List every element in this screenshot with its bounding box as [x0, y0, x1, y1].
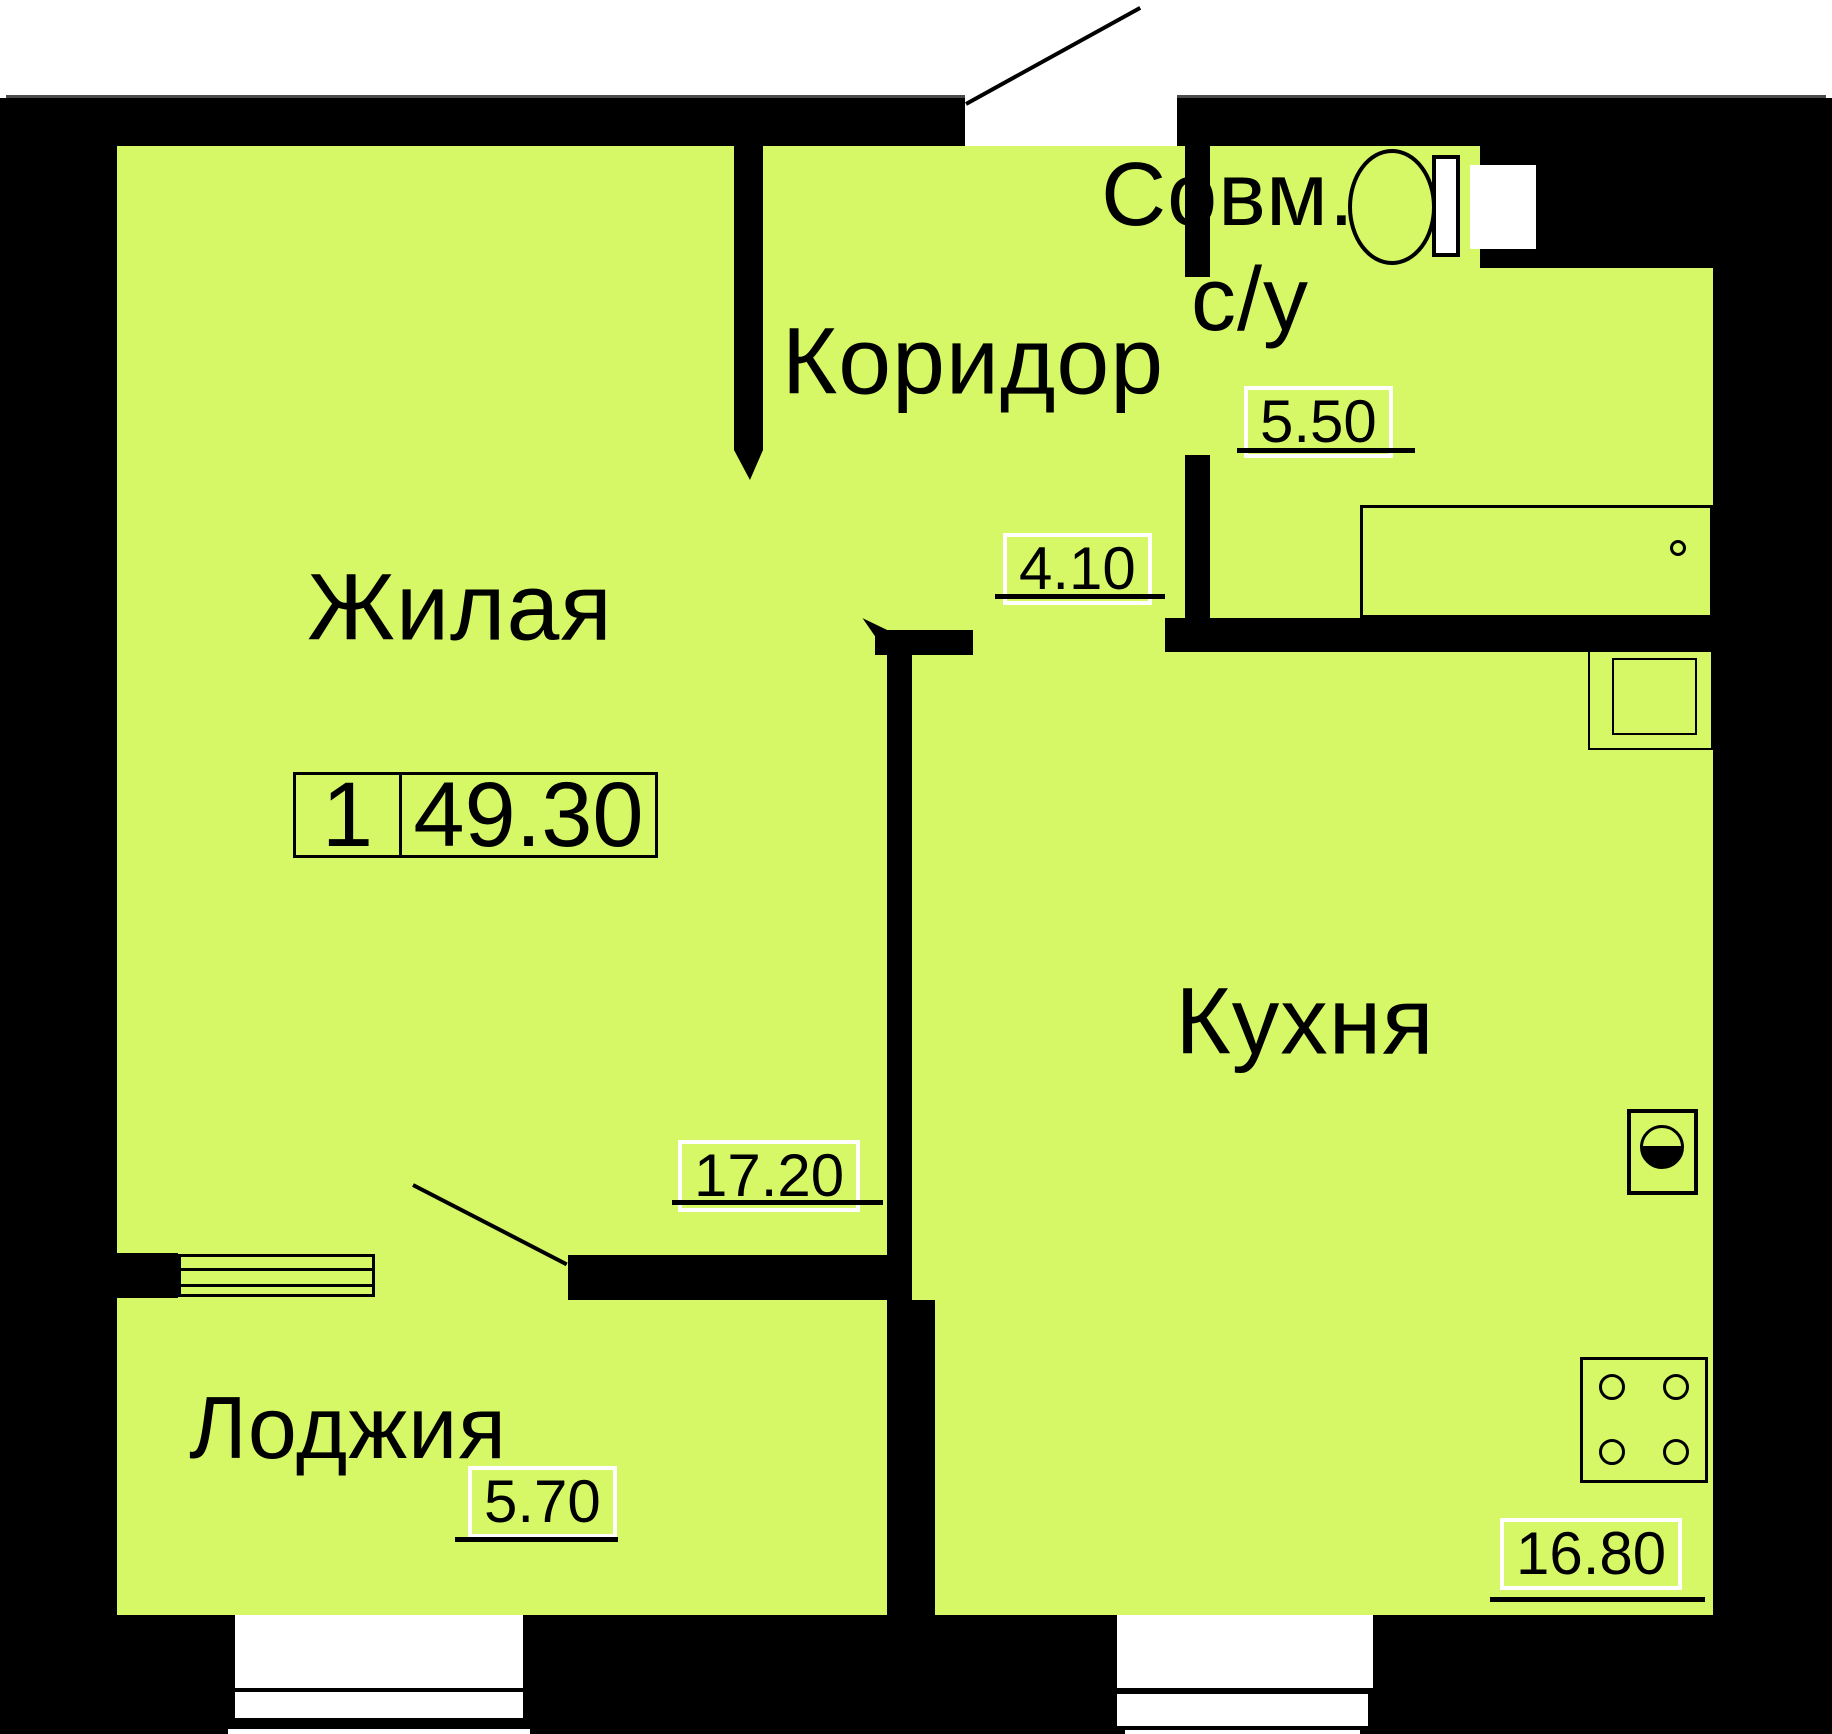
entrance-door-swing-line — [965, 6, 1141, 106]
kitchen-window-sill — [1117, 1694, 1368, 1726]
kitchen-window-sill-2 — [1125, 1730, 1360, 1734]
area-value-loggia: 5.70 — [468, 1466, 617, 1538]
room-label-kitchen: Кухня — [1175, 975, 1434, 1070]
badge-room-count: 1 — [296, 775, 402, 855]
wall-living-loggia-left — [117, 1253, 178, 1298]
loggia-window-sill — [235, 1692, 523, 1718]
area-underline-loggia — [455, 1537, 618, 1542]
wall-top-left — [0, 98, 965, 146]
room-label-loggia: Лоджия — [189, 1384, 507, 1472]
area-underline-kitchen — [1490, 1597, 1705, 1602]
area-underline-corridor — [995, 594, 1165, 599]
room-label-living: Жилая — [307, 561, 613, 656]
stove-icon — [1580, 1357, 1708, 1483]
kitchen-sink-icon — [1588, 638, 1713, 750]
window-icon — [178, 1254, 375, 1297]
wall-right — [1713, 98, 1832, 1734]
kitchen-window-icon — [1117, 1615, 1373, 1688]
wall-loggia-kitchen — [887, 1300, 935, 1615]
wall-bathroom-left-lower — [1185, 455, 1210, 618]
wall-living-kitchen — [887, 645, 912, 1300]
room-label-bathroom-line1: Совм. — [1101, 150, 1355, 240]
wall-living-corridor — [734, 146, 763, 450]
area-underline-bathroom — [1237, 448, 1415, 453]
toilet-icon — [1348, 149, 1468, 265]
area-underline-living — [672, 1200, 883, 1205]
floor-plan: Жилая Коридор Совм. с/у Кухня Лоджия 17.… — [0, 0, 1832, 1734]
loggia-window-sill-2 — [228, 1729, 530, 1734]
area-label-kitchen: 16.80 — [1500, 1518, 1682, 1590]
bathtub-icon — [1360, 505, 1713, 618]
wall-left — [0, 98, 117, 1734]
apartment-badge: 1 49.30 — [293, 772, 658, 858]
room-label-bathroom-line2: с/у — [1191, 255, 1309, 345]
wall-living-loggia-right — [568, 1255, 912, 1300]
area-label-loggia: 5.70 — [468, 1466, 617, 1538]
wall-niche — [1470, 165, 1536, 249]
area-value-kitchen: 16.80 — [1500, 1518, 1682, 1590]
washing-machine-icon — [1627, 1109, 1698, 1195]
loggia-window-icon — [235, 1615, 523, 1688]
room-label-corridor: Коридор — [782, 315, 1164, 410]
badge-total-area: 49.30 — [402, 775, 655, 855]
